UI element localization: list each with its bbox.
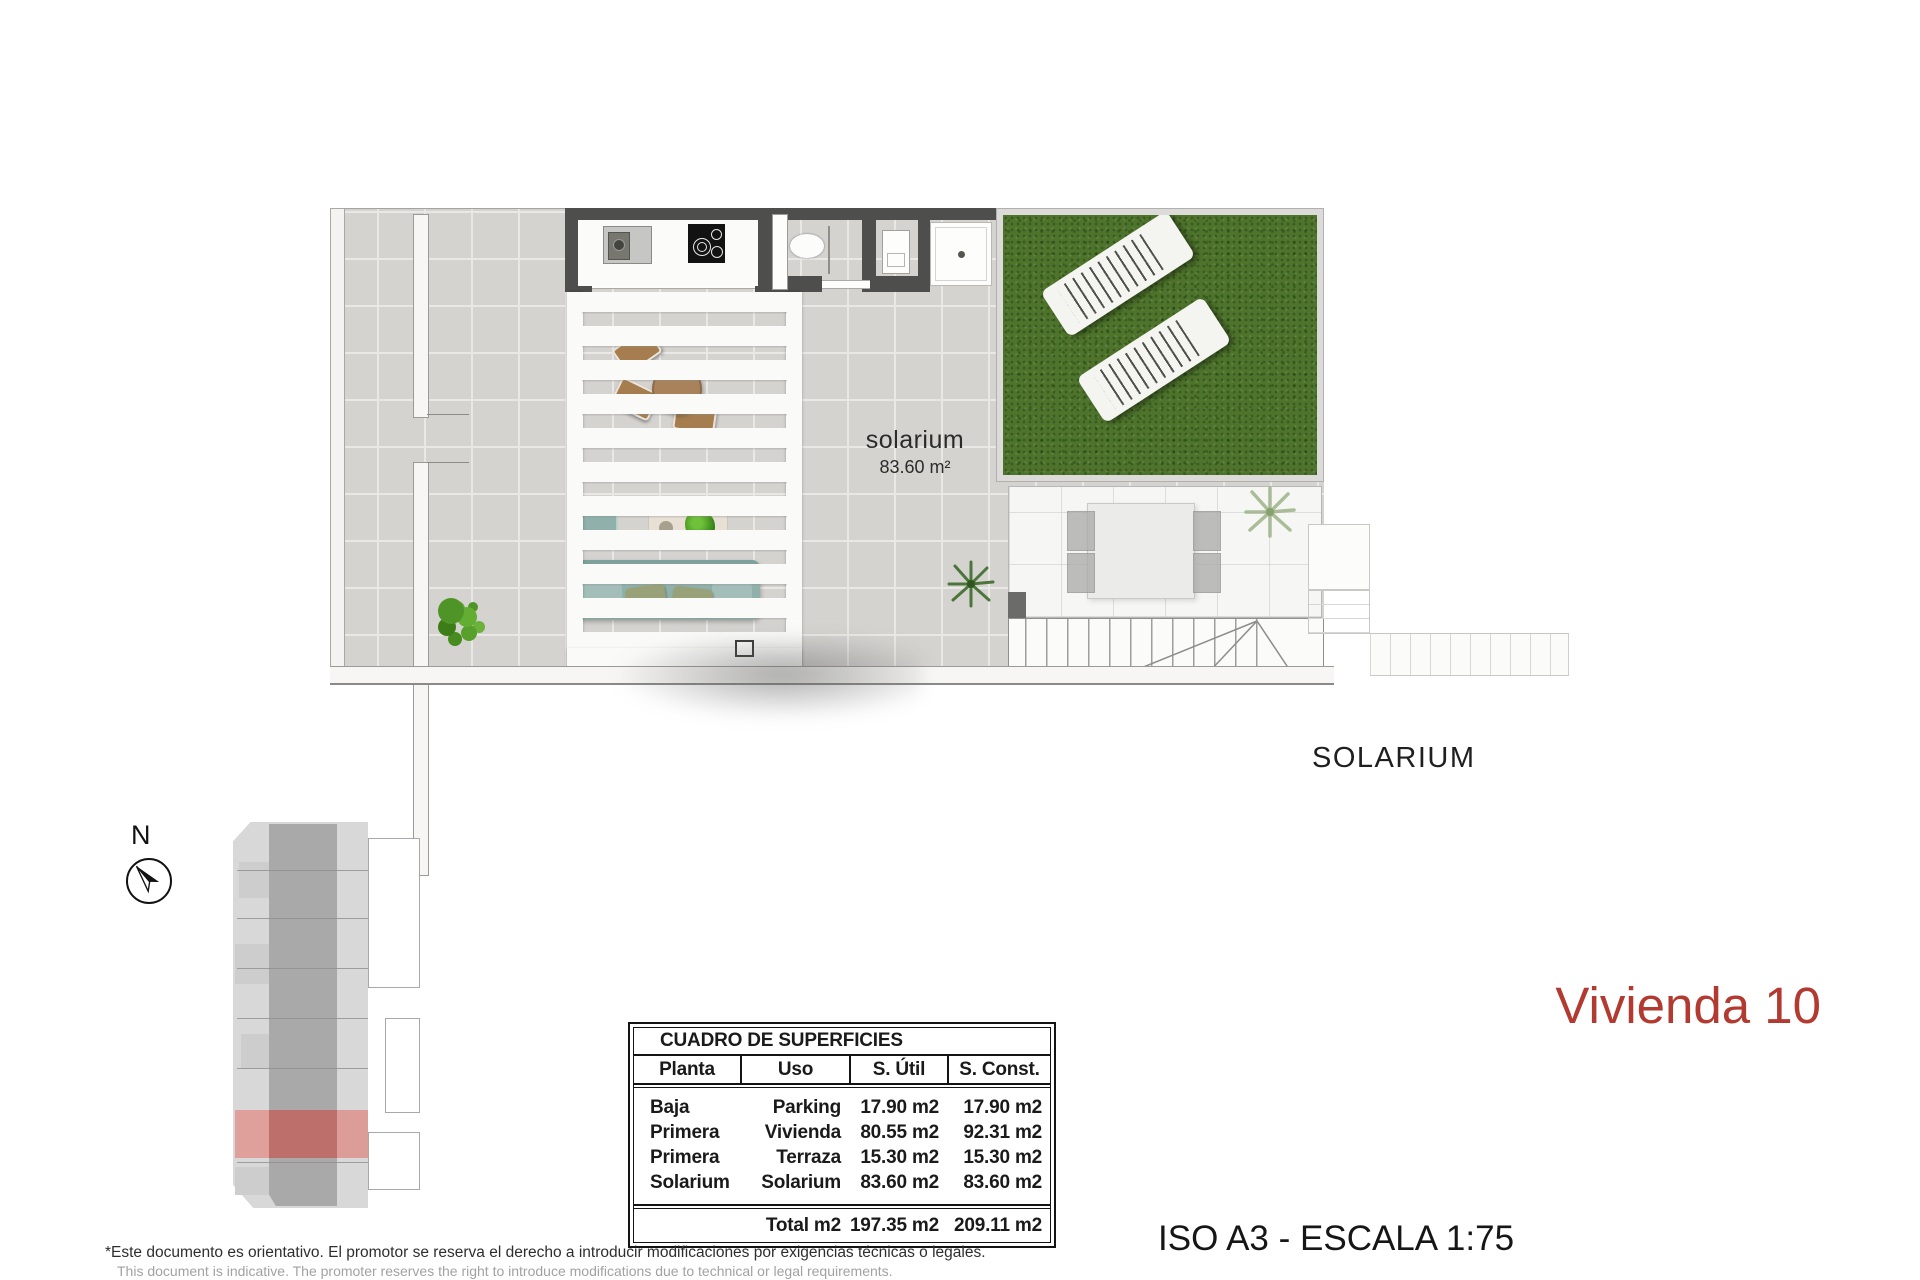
site-step [241, 1034, 269, 1068]
room-name: solarium [835, 426, 995, 455]
table-cell: Solarium [740, 1170, 849, 1195]
chair [1193, 511, 1221, 551]
floor-plan: solarium 83.60 m² [330, 208, 1324, 682]
sink-tap [613, 239, 625, 251]
pergola-rail [567, 292, 583, 674]
site-unit-outline [368, 1132, 420, 1190]
table-cell: Primera [634, 1120, 740, 1145]
grass-turf [1003, 215, 1317, 475]
table-cell: 15.30 m2 [849, 1145, 947, 1170]
table-header-row: Planta Uso S. Útil S. Const. [634, 1056, 1050, 1085]
col-header: Planta [634, 1056, 740, 1083]
highlight-unit-right [337, 1110, 368, 1158]
highlight-unit [269, 1110, 337, 1158]
site-line [237, 1162, 368, 1163]
unit-title: Vivienda 10 [1545, 978, 1821, 1034]
door-leaf [772, 214, 788, 290]
pergola-slats [582, 292, 787, 656]
table-cell: 80.55 m2 [849, 1120, 947, 1145]
table-cell: Primera [634, 1145, 740, 1170]
site-line [237, 1018, 368, 1019]
total-util: 197.35 m2 [849, 1211, 947, 1241]
shower-tray-icon [930, 222, 992, 286]
door-swing-mark [427, 462, 469, 463]
door-swing-mark [427, 414, 469, 415]
table-cell: 83.60 m2 [947, 1170, 1050, 1195]
cooktop-icon [688, 224, 725, 263]
lounger-slats [1093, 320, 1200, 410]
col-header: S. Útil [849, 1056, 947, 1083]
summer-kitchen [578, 220, 758, 286]
site-step [235, 1167, 271, 1195]
table-row: Baja Parking 17.90 m2 17.90 m2 [634, 1095, 1050, 1120]
table-cell: Solarium [634, 1170, 740, 1195]
north-arrow-icon [126, 858, 172, 904]
surfaces-table: CUADRO DE SUPERFICIES Planta Uso S. Útil… [628, 1022, 1056, 1248]
chair [1193, 553, 1221, 593]
site-line [237, 870, 368, 871]
site-unit-outline [385, 1018, 420, 1113]
total-rule [634, 1204, 1050, 1206]
left-parapet [330, 208, 345, 676]
total-const: 209.11 m2 [947, 1211, 1050, 1241]
chair [1067, 553, 1095, 593]
toilet-icon [790, 234, 824, 258]
glass-door [822, 280, 870, 289]
disclaimer-es: *Este documento es orientativo. El promo… [105, 1244, 986, 1262]
neighbor-stairs [1308, 590, 1370, 634]
chair [1067, 511, 1095, 551]
sink-icon [603, 226, 652, 264]
table-cell: 17.90 m2 [947, 1095, 1050, 1120]
plan-sheet: solarium 83.60 m² [0, 0, 1920, 1280]
site-line [237, 1068, 368, 1069]
neighbor-stair-run [1370, 633, 1569, 676]
stair-break-lines [1009, 619, 1323, 673]
table-row: Primera Vivienda 80.55 m2 92.31 m2 [634, 1120, 1050, 1145]
wc-door-line [828, 226, 830, 274]
shadow [612, 638, 922, 720]
table-cell: 92.31 m2 [947, 1120, 1050, 1145]
col-header: Uso [740, 1056, 849, 1083]
scale-note: ISO A3 - ESCALA 1:75 [1158, 1219, 1514, 1259]
divider-wall-upper [413, 214, 429, 418]
lower-terrace [1008, 486, 1322, 618]
table-title: CUADRO DE SUPERFICIES [634, 1028, 1050, 1056]
table-row: Solarium Solarium 83.60 m2 83.60 m2 [634, 1170, 1050, 1195]
table-cell: Baja [634, 1095, 740, 1120]
north-label: N [131, 820, 151, 851]
total-label: Total m2 [740, 1211, 849, 1241]
site-plan [233, 822, 423, 1210]
site-line [237, 968, 368, 969]
palm-plant-icon [945, 558, 997, 610]
table-row: Primera Terraza 15.30 m2 15.30 m2 [634, 1145, 1050, 1170]
water-heater-icon [882, 230, 910, 274]
wall [870, 276, 930, 292]
site-step [239, 862, 271, 898]
table-total-row: Total m2 197.35 m2 209.11 m2 [634, 1211, 1050, 1242]
table-cell: 83.60 m2 [849, 1170, 947, 1195]
site-unit-outline [368, 838, 420, 988]
lounger-slats [1057, 234, 1164, 324]
table-cell: Parking [740, 1095, 849, 1120]
highlight-unit-left [235, 1110, 269, 1158]
empty-cell [634, 1211, 740, 1241]
site-line [237, 918, 368, 919]
pergola-rail [786, 292, 802, 674]
room-label: solarium 83.60 m² [835, 426, 995, 478]
neighbor-landing [1308, 524, 1370, 590]
col-header: S. Const. [947, 1056, 1050, 1083]
site-step [235, 944, 271, 984]
disclaimer-en: This document is indicative. The promote… [117, 1263, 893, 1279]
drain-dot [958, 251, 965, 258]
palm-plant-icon [1241, 483, 1299, 541]
dining-table [1087, 503, 1195, 599]
table-cell: 17.90 m2 [849, 1095, 947, 1120]
grass-area [996, 208, 1324, 482]
floor-caption: SOLARIUM [1312, 742, 1475, 775]
plant-icon [438, 598, 464, 624]
wall [755, 276, 822, 292]
table-cell: 15.30 m2 [947, 1145, 1050, 1170]
fixture-detail [887, 253, 905, 267]
table-cell: Vivienda [740, 1120, 849, 1145]
table-body: Baja Parking 17.90 m2 17.90 m2 Primera V… [634, 1088, 1050, 1204]
table-cell: Terraza [740, 1145, 849, 1170]
room-area: 83.60 m² [835, 457, 995, 478]
